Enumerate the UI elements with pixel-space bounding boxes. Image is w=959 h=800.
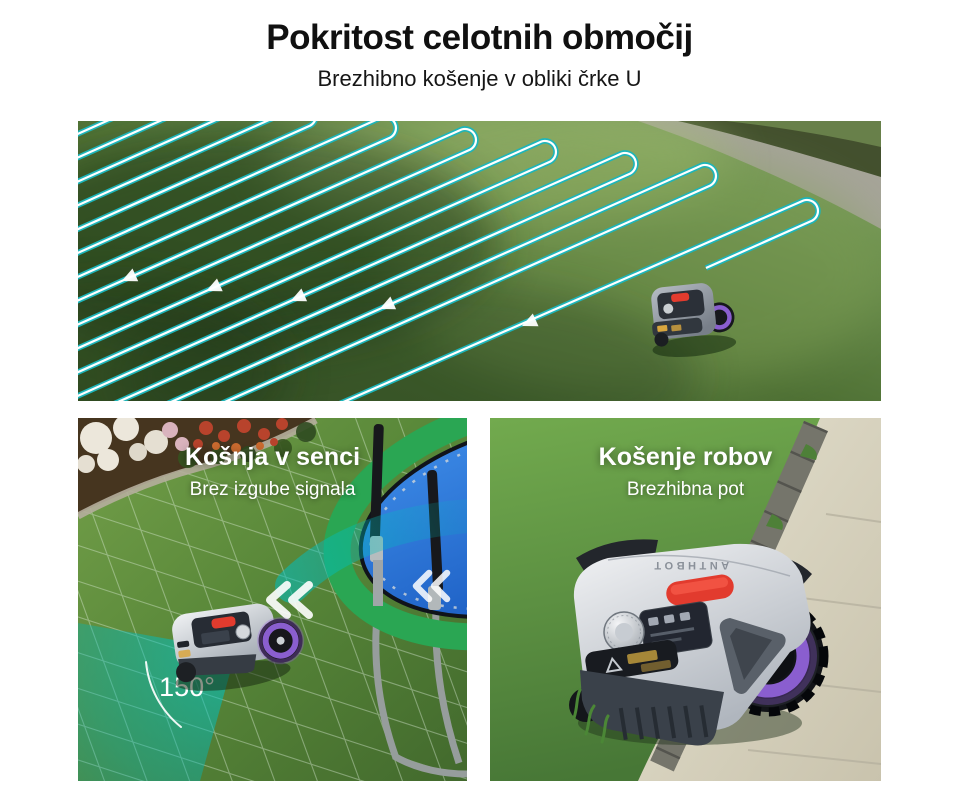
card-shade: 150° [78, 418, 467, 781]
product-feature-section: Pokritost celotnih območij Brezhibno koš… [0, 0, 959, 800]
page-subtitle: Brezhibno košenje v obliki črke U [0, 65, 959, 93]
robot-mower-edge: ANTHBOT [569, 539, 824, 749]
card-edge: ANTHBOT [490, 418, 881, 781]
shade-illustration: 150° [78, 418, 467, 781]
edge-illustration: ANTHBOT [490, 418, 881, 781]
feature-cards: 150° [78, 418, 881, 781]
hero-mowing-pattern-image [78, 121, 881, 401]
mower-brand-label: ANTHBOT [651, 559, 729, 571]
hero-illustration [78, 121, 881, 401]
page-title: Pokritost celotnih območij [0, 0, 959, 59]
